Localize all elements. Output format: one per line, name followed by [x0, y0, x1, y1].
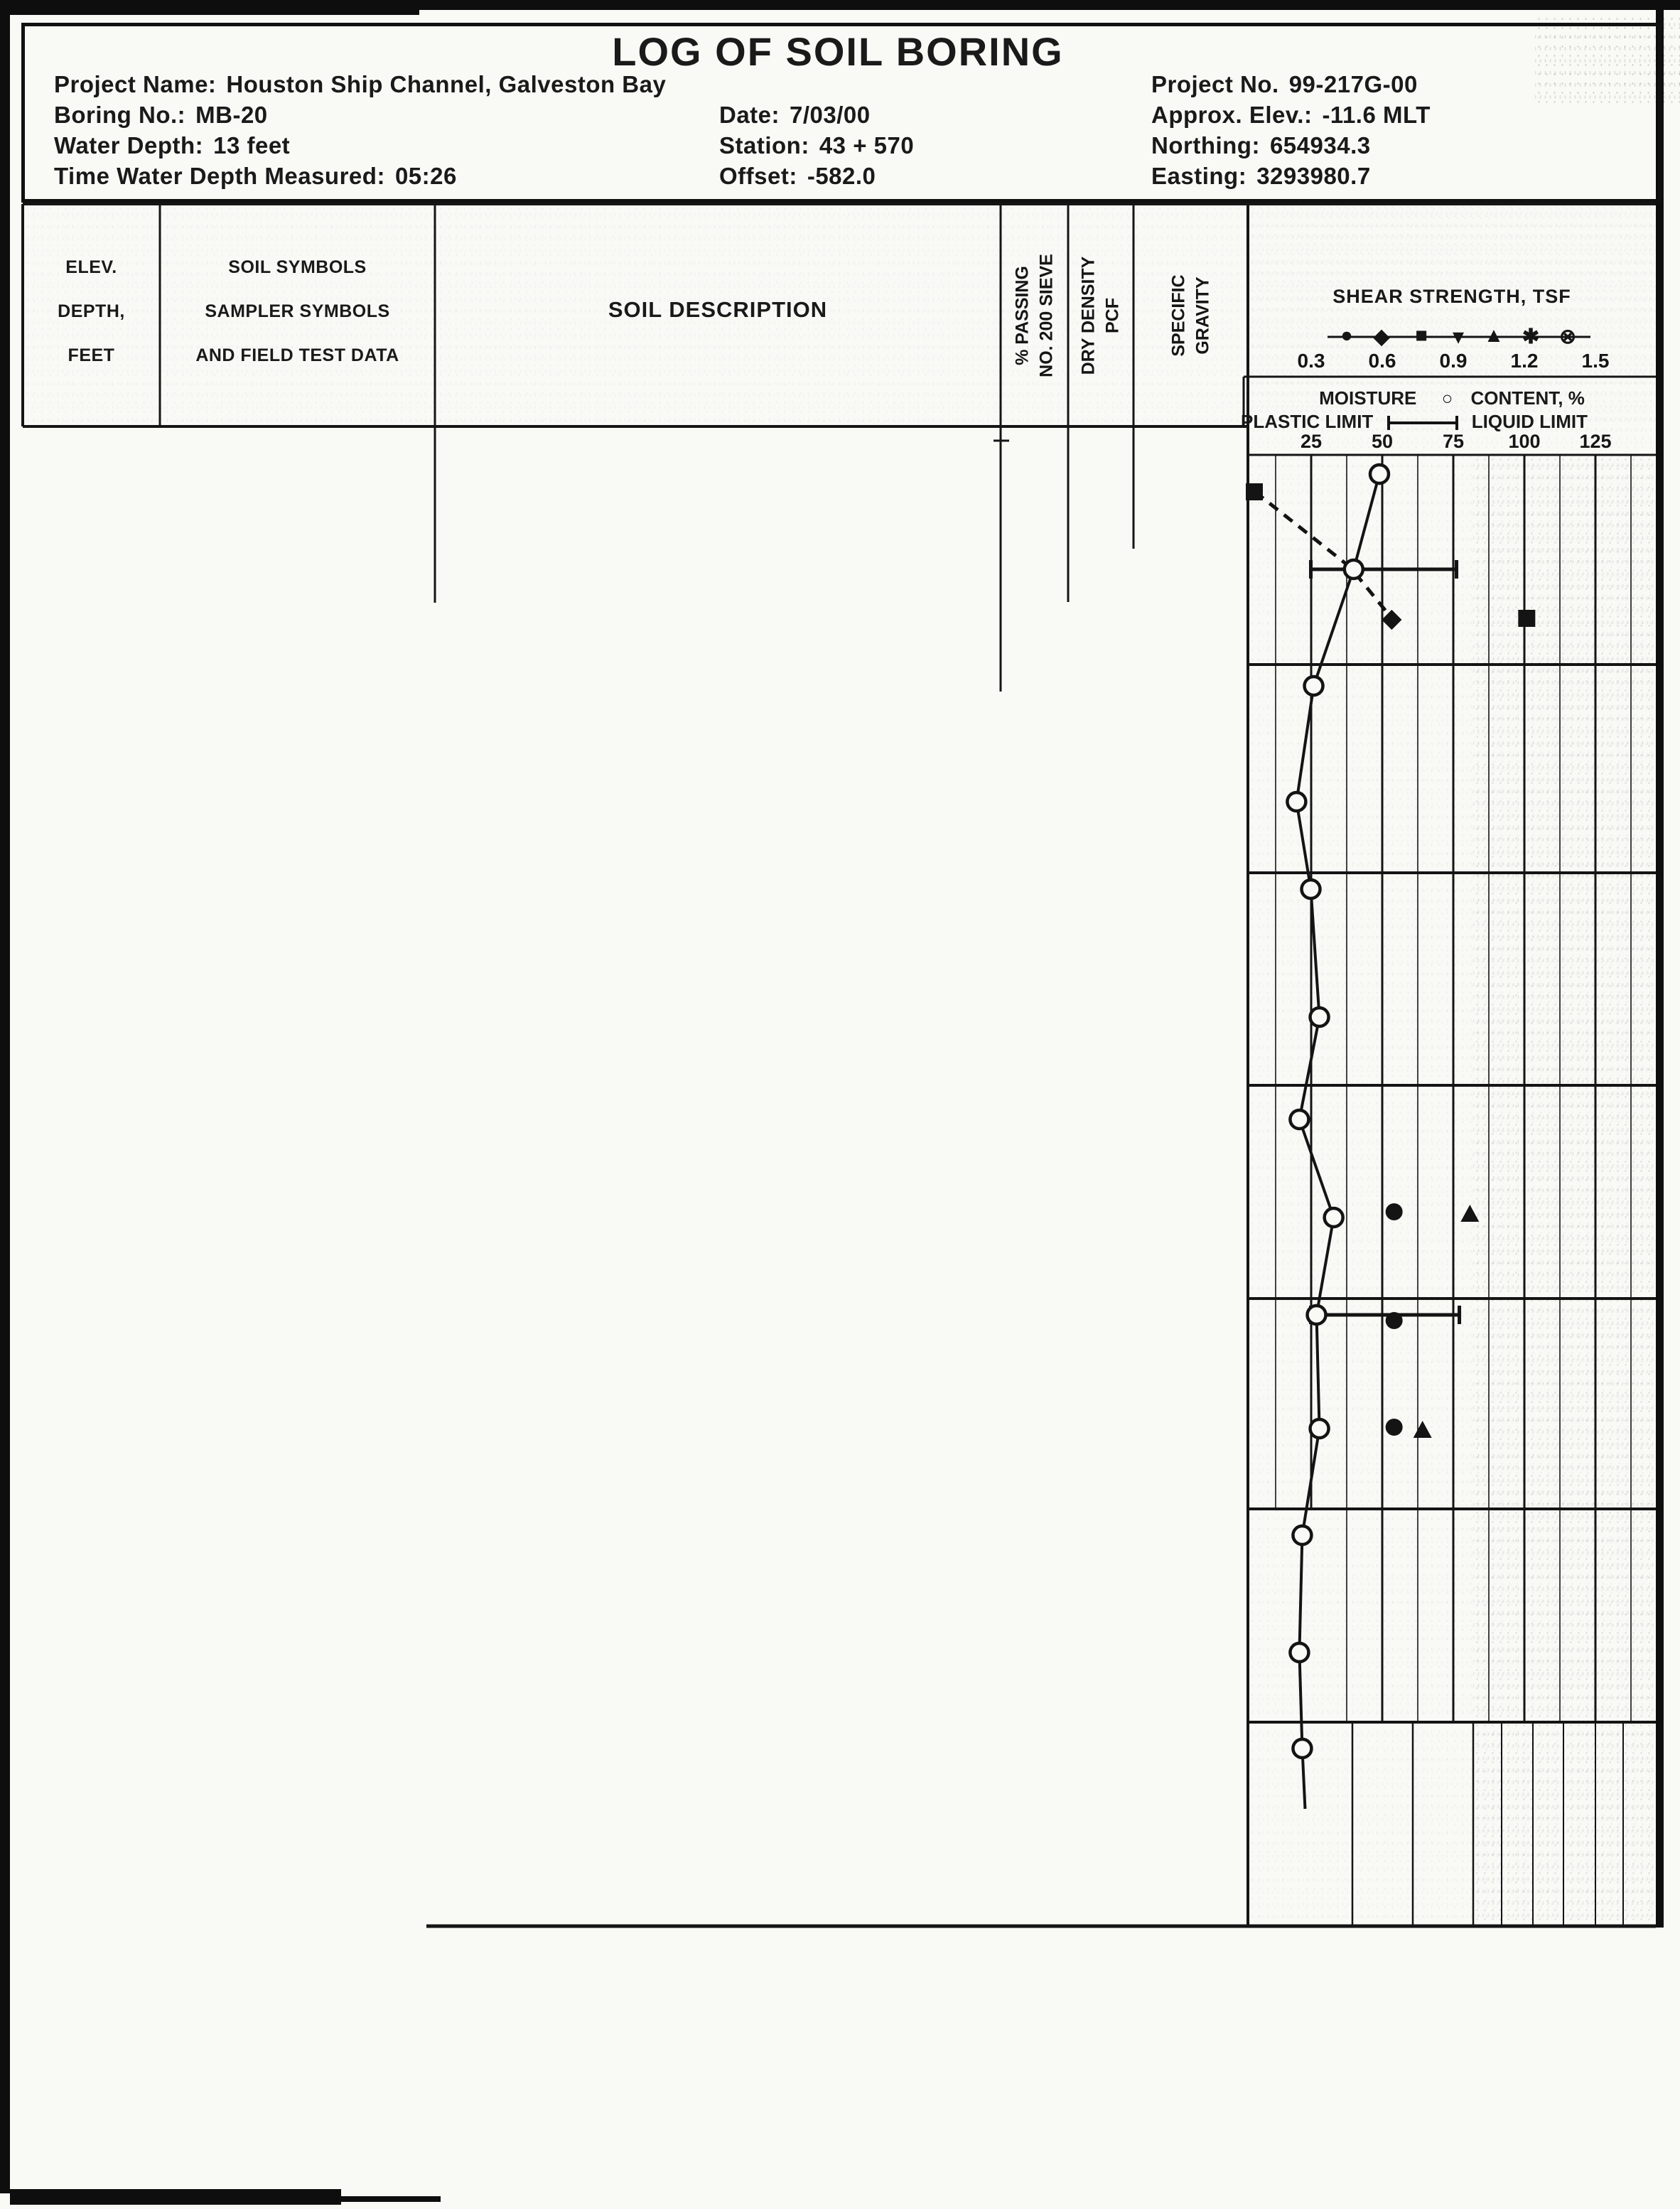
- col-elev-line1: ELEV.: [23, 257, 160, 278]
- field-label: Project Name:: [54, 71, 216, 97]
- chart-section-lines: [1248, 665, 1656, 1722]
- shear-diamond: [1382, 610, 1401, 630]
- field-label: Approx. Elev.:: [1151, 102, 1312, 128]
- moisture-point: [1325, 1208, 1343, 1227]
- shear-circle: [1386, 1419, 1403, 1436]
- axis-tick-label: 1.2: [1492, 350, 1556, 372]
- table-borders: [23, 204, 1656, 1926]
- moisture-point: [1290, 1110, 1308, 1129]
- field-label: Water Depth:: [54, 132, 203, 158]
- axis-tick-label: 100: [1492, 431, 1556, 453]
- moisture-line: [1296, 474, 1379, 1809]
- content-word: CONTENT, %: [1471, 387, 1585, 409]
- col-soil-description: SOIL DESCRIPTION: [435, 297, 1001, 323]
- axis-tick-label: 1.5: [1563, 350, 1627, 372]
- field-value: 13 feet: [213, 132, 290, 158]
- axis-tick-label: 0.6: [1350, 350, 1414, 372]
- col-density-line1: DRY DENSITY: [1078, 256, 1098, 375]
- field-label: Station:: [719, 132, 809, 158]
- shear-square: [1518, 610, 1535, 627]
- scan-edge-bottom-faint: [341, 2196, 441, 2202]
- moisture-point: [1370, 465, 1389, 483]
- moisture-point: [1287, 792, 1305, 811]
- moisture-word: MOISTURE: [1319, 387, 1416, 409]
- moisture-point: [1308, 1306, 1326, 1324]
- axis-tick-label: 0.9: [1421, 350, 1485, 372]
- field-value: 654934.3: [1270, 132, 1371, 158]
- moisture-point: [1290, 1643, 1308, 1662]
- shear-circle: [1386, 1203, 1403, 1220]
- field-value: Houston Ship Channel, Galveston Bay: [226, 71, 666, 97]
- shear-legend-title: SHEAR STRENGTH, TSF: [1248, 286, 1656, 308]
- shear-symbol-glyph: ⊗: [1536, 324, 1600, 349]
- field-label: Time Water Depth Measured:: [54, 163, 385, 189]
- dashed-shear-line: [1255, 492, 1387, 613]
- limit-bar-glyph: [1386, 414, 1460, 431]
- scan-edge-bottom: [10, 2189, 341, 2205]
- col-elev-line3: FEET: [23, 345, 160, 366]
- col-elev-line2: DEPTH,: [23, 301, 160, 322]
- col-symbols-line3: AND FIELD TEST DATA: [160, 345, 435, 366]
- scan-edge-top-left-step: [0, 10, 419, 15]
- field-value: MB-20: [195, 102, 268, 128]
- field-label: Date:: [719, 102, 780, 128]
- moisture-legend-line2: PLASTIC LIMIT LIQUID LIMIT: [1241, 411, 1656, 433]
- shear-square: [1246, 483, 1263, 500]
- field-value: 7/03/00: [790, 102, 871, 128]
- field-northing: Northing:654934.3: [1151, 132, 1371, 159]
- field-label: Boring No.:: [54, 102, 185, 128]
- col-gravity-line2: GRAVITY: [1192, 276, 1212, 354]
- field-station: Station:43 + 570: [719, 132, 914, 159]
- axis-tick-label: 75: [1421, 431, 1485, 453]
- soil-boring-log-page: LOG OF SOIL BORING Project Name:Houston …: [0, 0, 1680, 2209]
- field-boring-no: Boring No.:MB-20: [54, 102, 268, 129]
- field-value: 43 + 570: [819, 132, 914, 158]
- scan-edge-top: [0, 0, 1680, 10]
- shear-triangle: [1414, 1421, 1432, 1438]
- field-label: Easting:: [1151, 163, 1246, 189]
- moisture-point: [1310, 1419, 1329, 1438]
- axis-tick-label: 50: [1350, 431, 1414, 453]
- moisture-point: [1293, 1739, 1311, 1758]
- plastic-limit-label: PLASTIC LIMIT: [1241, 411, 1373, 432]
- scan-edge-left: [0, 0, 10, 2193]
- field-value: -11.6 MLT: [1322, 102, 1430, 128]
- col-density-line2: PCF: [1102, 298, 1122, 333]
- axis-tick-label: 125: [1563, 431, 1627, 453]
- col-passing-line2: NO. 200 SIEVE: [1036, 254, 1056, 377]
- col-symbols-line2: SAMPLER SYMBOLS: [160, 301, 435, 322]
- field-time-water-depth: Time Water Depth Measured:05:26: [54, 163, 457, 190]
- moisture-legend-line1: MOISTURE ○ CONTENT, %: [1248, 387, 1656, 409]
- shear-circle: [1386, 1312, 1403, 1329]
- field-value: 3293980.7: [1256, 163, 1371, 189]
- field-label: Northing:: [1151, 132, 1260, 158]
- col-passing-line1: % PASSING: [1012, 266, 1032, 365]
- field-label: Project No.: [1151, 71, 1279, 97]
- col-symbols-line1: SOIL SYMBOLS: [160, 257, 435, 278]
- col-specific-gravity: SPECIFIC GRAVITY: [1134, 204, 1248, 426]
- shear-triangle: [1460, 1205, 1479, 1222]
- field-offset: Offset:-582.0: [719, 163, 876, 190]
- chart-data-points: [1246, 465, 1535, 1809]
- col-passing-200-sieve: % PASSING NO. 200 SIEVE: [1001, 204, 1068, 426]
- field-label: Offset:: [719, 163, 797, 189]
- col-gravity-line1: SPECIFIC: [1168, 274, 1188, 356]
- moisture-point: [1293, 1526, 1311, 1544]
- field-date: Date:7/03/00: [719, 102, 871, 129]
- field-project-no: Project No.99-217G-00: [1151, 71, 1418, 98]
- moisture-circle-glyph: ○: [1442, 387, 1453, 409]
- col-dry-density: DRY DENSITY PCF: [1068, 204, 1134, 426]
- field-easting: Easting:3293980.7: [1151, 163, 1371, 190]
- moisture-point: [1345, 560, 1363, 579]
- chart-gridlines: [1276, 455, 1631, 1925]
- axis-tick-label: 0.3: [1279, 350, 1343, 372]
- liquid-limit-label: LIQUID LIMIT: [1472, 411, 1588, 432]
- field-project-name: Project Name:Houston Ship Channel, Galve…: [54, 71, 666, 98]
- field-value: 99-217G-00: [1289, 71, 1418, 97]
- field-value: -582.0: [807, 163, 876, 189]
- scan-noise-chart: [1248, 203, 1656, 1925]
- moisture-point: [1310, 1008, 1329, 1026]
- field-water-depth: Water Depth:13 feet: [54, 132, 290, 159]
- field-approx-elev: Approx. Elev.:-11.6 MLT: [1151, 102, 1431, 129]
- scan-noise-chart-right: [1473, 455, 1656, 1925]
- scan-edge-right: [1656, 6, 1664, 1928]
- page-title: LOG OF SOIL BORING: [21, 28, 1654, 75]
- axis-tick-label: 25: [1279, 431, 1343, 453]
- moisture-point: [1302, 880, 1320, 898]
- moisture-point: [1305, 677, 1323, 695]
- field-value: 05:26: [395, 163, 457, 189]
